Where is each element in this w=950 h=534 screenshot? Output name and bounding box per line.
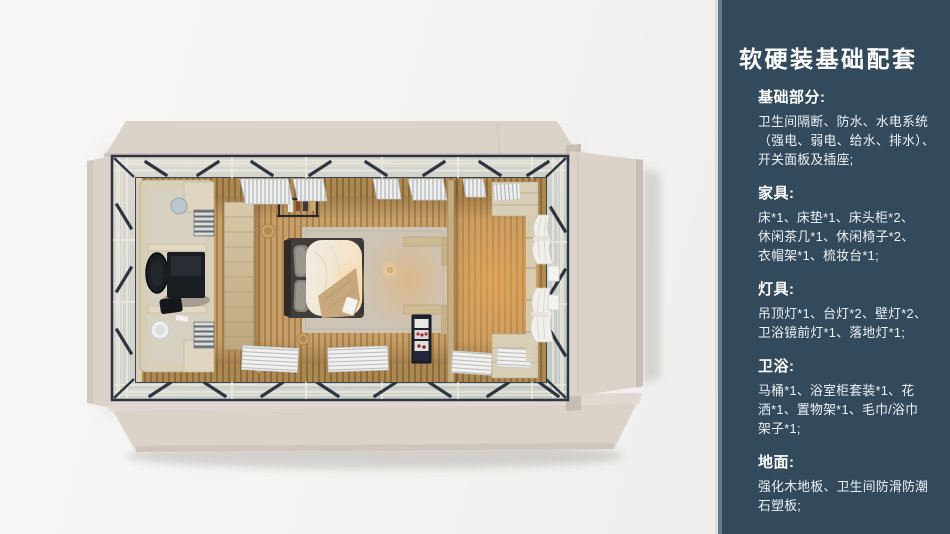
minibar-cabinet — [412, 315, 431, 363]
spec-line: 床*1、床垫*1、床头柜*2、 — [758, 208, 936, 227]
spec-line: 石塑板; — [758, 496, 936, 515]
bathroom-cabinet-top — [184, 182, 214, 212]
floorplan-illustration — [0, 0, 715, 534]
panel-edge — [715, 0, 722, 534]
spec-section-bathroom: 卫浴: 马桶*1、浴室柜套装*1、花 洒*1、置物架*1、毛巾/浴巾 架子*1; — [758, 357, 936, 438]
spec-line: 卫生间隔断、防水、水电系统 — [758, 112, 936, 131]
spec-line: 卫浴镜前灯*1、落地灯*1; — [758, 323, 936, 342]
spec-line: 架子*1; — [758, 419, 936, 438]
section-heading: 基础部分: — [758, 88, 936, 108]
spec-line: 强化木地板、卫生间防滑防潮 — [758, 477, 936, 496]
spec-line: （强电、弱电、给水、排水）、 — [758, 131, 936, 150]
page: 软硬装基础配套 基础部分: 卫生间隔断、防水、水电系统 （强电、弱电、给水、排水… — [0, 0, 950, 534]
flap-bottom — [107, 393, 642, 452]
section-heading: 地面: — [758, 453, 936, 473]
bedding-roll — [493, 183, 520, 201]
spec-section-basics: 基础部分: 卫生间隔断、防水、水电系统 （强电、弱电、给水、排水）、 开关面板及… — [758, 88, 936, 169]
bed-headboard — [284, 240, 291, 316]
spec-line: 马桶*1、浴室柜套装*1、花 — [758, 381, 936, 400]
towel-radiator — [194, 322, 214, 348]
flap-left — [87, 156, 113, 408]
flap-top — [104, 121, 580, 157]
spec-section-flooring: 地面: 强化木地板、卫生间防滑防潮 石塑板; — [758, 453, 936, 515]
spec-line: 衣帽架*1、梳妆台*1; — [758, 246, 936, 265]
section-heading: 灯具: — [758, 280, 936, 300]
door-panel-right — [566, 144, 643, 411]
room-render — [0, 0, 715, 534]
spec-line: 休闲茶几*1、休闲椅子*2、 — [758, 227, 936, 246]
bathroom — [140, 180, 214, 372]
info-panel: 软硬装基础配套 基础部分: 卫生间隔断、防水、水电系统 （强电、弱电、给水、排水… — [715, 0, 950, 534]
shower-head — [171, 198, 187, 214]
panel-title: 软硬装基础配套 — [739, 44, 940, 74]
floor-lamp — [381, 261, 399, 279]
door-panel-shadow — [643, 168, 660, 384]
spec-line: 吊顶灯*1、台灯*2、壁灯*2、 — [758, 304, 936, 323]
spec-line: 开关面板及插座; — [758, 150, 936, 169]
entry-bench-top — [492, 182, 538, 216]
spec-section-furniture: 家具: 床*1、床垫*1、床头柜*2、 休闲茶几*1、休闲椅子*2、 衣帽架*1… — [758, 184, 936, 265]
vanity-stool — [159, 297, 183, 315]
headboard-wall — [224, 202, 264, 350]
spec-sections: 基础部分: 卫生间隔断、防水、水电系统 （强电、弱电、给水、排水）、 开关面板及… — [758, 88, 936, 515]
spec-section-lighting: 灯具: 吊顶灯*1、台灯*2、壁灯*2、 卫浴镜前灯*1、落地灯*1; — [758, 280, 936, 342]
section-heading: 家具: — [758, 184, 936, 204]
towel-radiator — [194, 210, 214, 236]
bed — [284, 238, 370, 318]
spec-line: 洒*1、置物架*1、毛巾/浴巾 — [758, 400, 936, 419]
section-heading: 卫浴: — [758, 357, 936, 377]
bathroom-divider — [148, 244, 206, 251]
